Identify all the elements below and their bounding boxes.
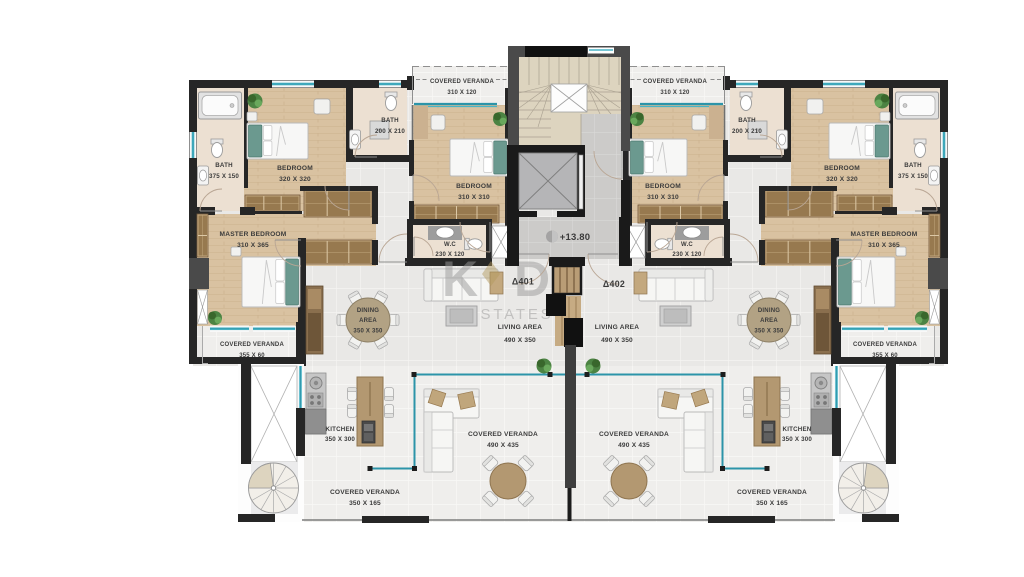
svg-text:AREA: AREA xyxy=(760,318,778,324)
svg-text:200 X 210: 200 X 210 xyxy=(375,128,405,135)
svg-text:STATES: STATES xyxy=(481,306,554,323)
svg-text:Δ401: Δ401 xyxy=(512,277,534,287)
svg-text:BATH: BATH xyxy=(904,162,922,169)
svg-text:BATH: BATH xyxy=(738,117,756,124)
svg-text:COVERED VERANDA: COVERED VERANDA xyxy=(599,431,669,438)
svg-text:310 X 365: 310 X 365 xyxy=(868,242,900,249)
svg-text:DINING: DINING xyxy=(758,308,780,314)
svg-text:310 X 310: 310 X 310 xyxy=(458,194,490,201)
svg-text:310 X 310: 310 X 310 xyxy=(647,194,679,201)
svg-text:350 X 350: 350 X 350 xyxy=(353,329,383,335)
svg-text:W.C: W.C xyxy=(444,242,456,248)
svg-text:320 X 320: 320 X 320 xyxy=(826,176,858,183)
svg-text:310 X 120: 310 X 120 xyxy=(447,90,477,96)
svg-text:LIVING AREA: LIVING AREA xyxy=(498,324,542,331)
svg-text:COVERED VERANDA: COVERED VERANDA xyxy=(643,79,707,85)
svg-text:COVERED VERANDA: COVERED VERANDA xyxy=(853,342,917,348)
svg-text:LIVING AREA: LIVING AREA xyxy=(595,324,639,331)
svg-text:350 X 300: 350 X 300 xyxy=(782,436,812,443)
svg-text:BEDROOM: BEDROOM xyxy=(456,183,492,190)
svg-text:320 X 320: 320 X 320 xyxy=(279,176,311,183)
svg-text:350 X 165: 350 X 165 xyxy=(349,500,381,507)
svg-text:230 X 120: 230 X 120 xyxy=(672,252,702,258)
svg-text:MASTER BEDROOM: MASTER BEDROOM xyxy=(220,231,287,238)
svg-text:+13.80: +13.80 xyxy=(560,232,591,243)
svg-text:200 X 210: 200 X 210 xyxy=(732,128,762,135)
svg-text:490 X 350: 490 X 350 xyxy=(601,337,633,344)
svg-text:BATH: BATH xyxy=(215,162,233,169)
svg-text:AREA: AREA xyxy=(359,318,377,324)
svg-text:355 X 60: 355 X 60 xyxy=(872,353,898,359)
svg-text:COVERED VERANDA: COVERED VERANDA xyxy=(737,489,807,496)
svg-text:COVERED VERANDA: COVERED VERANDA xyxy=(220,342,284,348)
svg-text:230 X 120: 230 X 120 xyxy=(435,252,465,258)
svg-text:K: K xyxy=(442,251,478,307)
svg-text:350 X 300: 350 X 300 xyxy=(325,436,355,443)
svg-text:COVERED VERANDA: COVERED VERANDA xyxy=(330,489,400,496)
svg-text:DINING: DINING xyxy=(357,308,379,314)
svg-text:310 X 365: 310 X 365 xyxy=(237,242,269,249)
svg-text:Δ402: Δ402 xyxy=(603,279,625,289)
svg-text:310 X 120: 310 X 120 xyxy=(660,90,690,96)
svg-text:COVERED VERANDA: COVERED VERANDA xyxy=(468,431,538,438)
svg-text:MASTER BEDROOM: MASTER BEDROOM xyxy=(851,231,918,238)
svg-text:490 X 435: 490 X 435 xyxy=(618,442,650,449)
svg-text:350 X 350: 350 X 350 xyxy=(754,329,784,335)
svg-text:375 X 150: 375 X 150 xyxy=(898,173,928,180)
svg-text:BEDROOM: BEDROOM xyxy=(277,165,313,172)
svg-text:375 X 150: 375 X 150 xyxy=(209,173,239,180)
svg-text:BEDROOM: BEDROOM xyxy=(645,183,681,190)
svg-text:COVERED VERANDA: COVERED VERANDA xyxy=(430,79,494,85)
svg-text:KITCHEN: KITCHEN xyxy=(783,426,812,433)
svg-text:490 X 435: 490 X 435 xyxy=(487,442,519,449)
svg-text:BATH: BATH xyxy=(381,117,399,124)
svg-text:KITCHEN: KITCHEN xyxy=(326,426,355,433)
svg-text:355 X 60: 355 X 60 xyxy=(239,353,265,359)
svg-text:W.C: W.C xyxy=(681,242,693,248)
svg-text:490 X 350: 490 X 350 xyxy=(504,337,536,344)
svg-text:BEDROOM: BEDROOM xyxy=(824,165,860,172)
svg-text:350 X 165: 350 X 165 xyxy=(756,500,788,507)
